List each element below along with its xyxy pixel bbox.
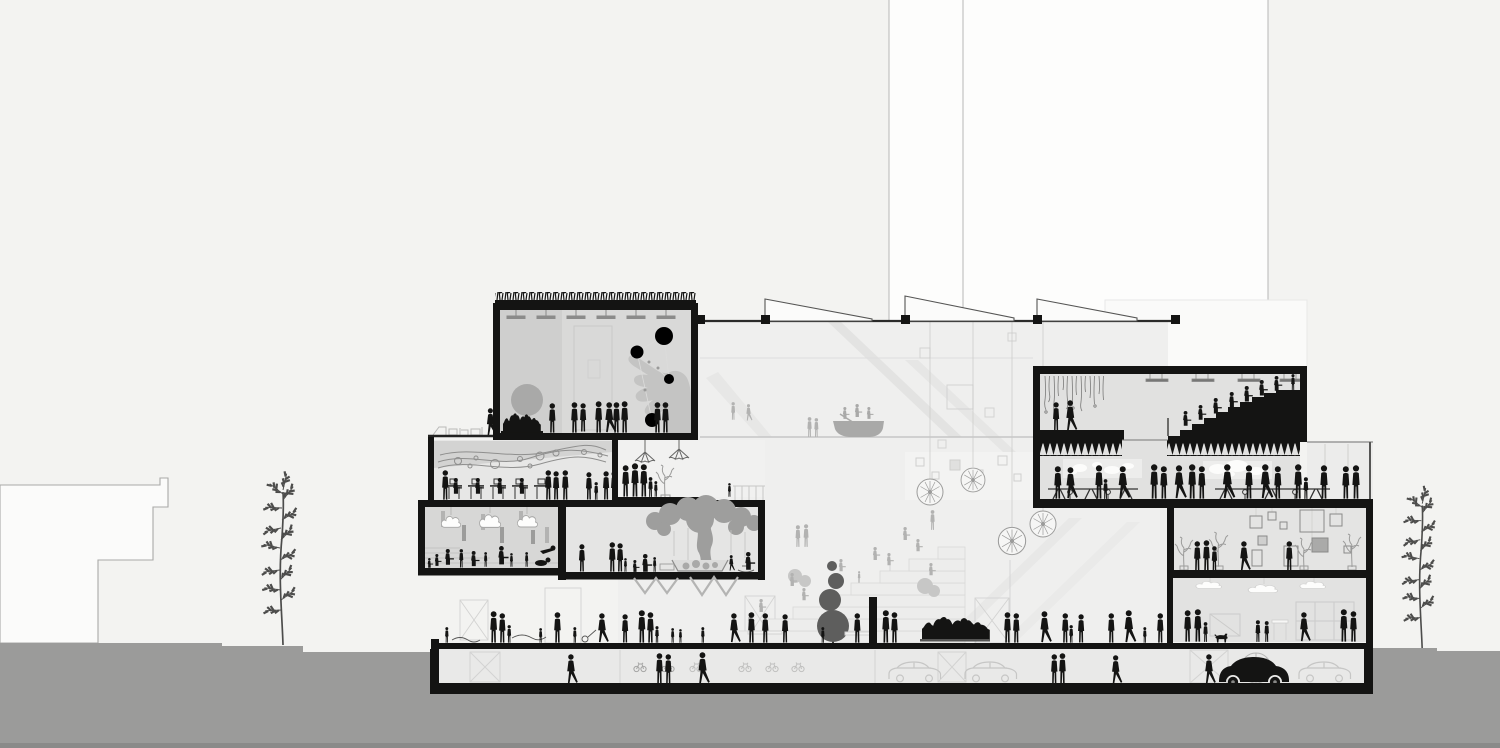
acoustic-sawtooth — [1040, 440, 1300, 456]
cafe — [1167, 578, 1373, 648]
background-tower — [889, 0, 1268, 322]
ground-floor-wall — [869, 597, 877, 643]
basement-slab — [430, 683, 1373, 694]
mezzanine — [618, 440, 765, 503]
sphere-exhibit — [511, 384, 543, 416]
gallery — [1167, 508, 1373, 580]
architectural-section-illustration: Black-and-white architectural section of… — [0, 0, 1500, 748]
restaurant-window-bay — [1307, 442, 1373, 499]
children-room — [418, 500, 566, 580]
basement-parking — [430, 648, 1373, 694]
stage-platform — [1040, 430, 1124, 440]
ground-slab — [437, 643, 1373, 649]
library — [428, 437, 618, 507]
sand-basin — [672, 560, 728, 571]
media-room — [493, 292, 698, 440]
ground-baseline — [0, 743, 1500, 748]
section-drawing: Black-and-white architectural section of… — [0, 0, 1500, 748]
